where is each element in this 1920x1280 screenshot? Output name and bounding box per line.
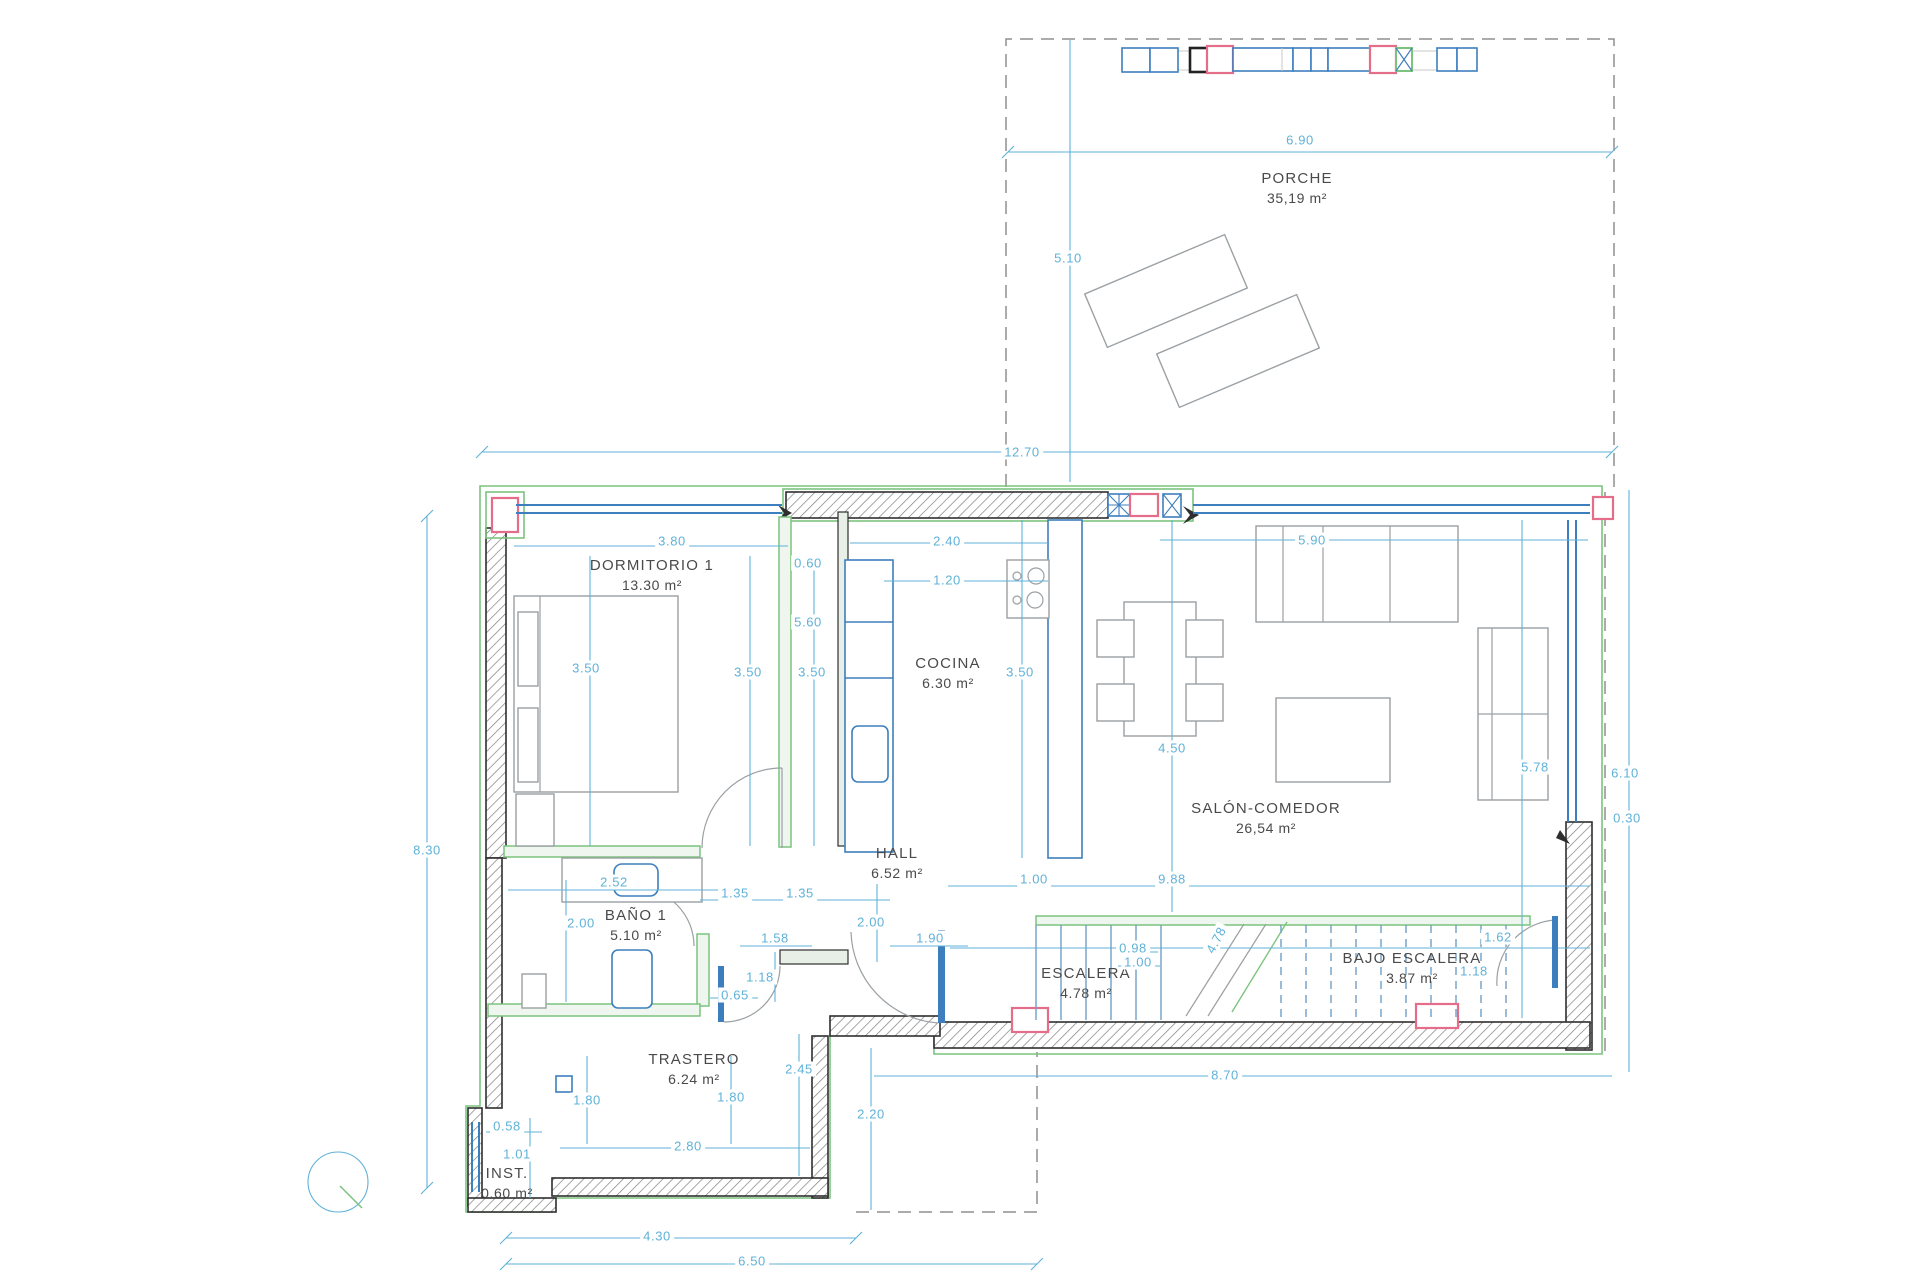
dimension-label: 12.70 <box>1001 445 1043 460</box>
room-name: SALÓN-COMEDOR <box>1191 799 1341 819</box>
room-area: 5.10 m² <box>605 926 667 944</box>
room-label-hall: HALL6.52 m² <box>871 844 923 882</box>
dimension-label: 2.80 <box>671 1139 705 1154</box>
room-label-cocina: COCINA6.30 m² <box>915 654 981 692</box>
dimension-label: 0.60 <box>791 556 825 571</box>
room-name: DORMITORIO 1 <box>590 556 714 576</box>
dimension-label: 5.60 <box>791 615 825 630</box>
dimension-label: 0.65 <box>718 988 752 1003</box>
dimension-label: 1.35 <box>718 886 752 901</box>
room-name: ESCALERA <box>1041 964 1131 984</box>
dimension-label: 1.00 <box>1121 955 1155 970</box>
dimension-label: 2.00 <box>854 915 888 930</box>
dimension-label: 8.30 <box>410 843 444 858</box>
dimension-label: 3.50 <box>731 665 765 680</box>
room-label-trastero: TRASTERO6.24 m² <box>648 1050 739 1088</box>
dimension-label: 3.80 <box>655 534 689 549</box>
room-label-escalera: ESCALERA4.78 m² <box>1041 964 1131 1002</box>
dimension-label: 5.90 <box>1295 533 1329 548</box>
room-area: 35,19 m² <box>1261 189 1332 207</box>
room-label-dormitorio-1: DORMITORIO 113.30 m² <box>590 556 714 594</box>
room-label-porche: PORCHE35,19 m² <box>1261 169 1332 207</box>
dimension-label: 1.90 <box>913 931 947 946</box>
room-label-inst: INST.0.60 m² <box>481 1164 533 1202</box>
dimension-label: 2.20 <box>854 1107 888 1122</box>
room-area: 0.60 m² <box>481 1184 533 1202</box>
dimension-label: 1.20 <box>930 573 964 588</box>
room-area: 6.52 m² <box>871 864 923 882</box>
room-name: INST. <box>481 1164 533 1184</box>
room-area: 4.78 m² <box>1041 984 1131 1002</box>
room-name: PORCHE <box>1261 169 1332 189</box>
dimension-label: 0.30 <box>1610 811 1644 826</box>
dimension-label: 4.78 <box>1201 922 1230 959</box>
dimension-label: 1.80 <box>714 1090 748 1105</box>
dimension-label: 0.98 <box>1116 941 1150 956</box>
dimension-label: 6.10 <box>1608 766 1642 781</box>
dimension-label: 1.80 <box>570 1093 604 1108</box>
room-name: TRASTERO <box>648 1050 739 1070</box>
dimension-label: 1.01 <box>500 1147 534 1162</box>
dimension-label: 8.70 <box>1208 1068 1242 1083</box>
room-area: 6.24 m² <box>648 1070 739 1088</box>
dimension-label: 2.40 <box>930 534 964 549</box>
dimension-label: 1.58 <box>758 931 792 946</box>
dimension-label: 6.90 <box>1283 133 1317 148</box>
dimension-label: 2.00 <box>564 916 598 931</box>
dimension-label: 3.50 <box>795 665 829 680</box>
dimension-label: 1.00 <box>1017 872 1051 887</box>
dimension-label: 2.45 <box>782 1062 816 1077</box>
dimension-label: 3.50 <box>1003 665 1037 680</box>
dimension-label: 3.50 <box>569 661 603 676</box>
dimension-label: 4.50 <box>1155 741 1189 756</box>
room-label-salon-comedor: SALÓN-COMEDOR26,54 m² <box>1191 799 1341 837</box>
dimension-label: 6.50 <box>735 1254 769 1269</box>
dimension-label: 0.58 <box>490 1119 524 1134</box>
dimension-label: 1.35 <box>783 886 817 901</box>
room-area: 13.30 m² <box>590 576 714 594</box>
dimension-label: 2.52 <box>597 875 631 890</box>
room-label-bano-1: BAÑO 15.10 m² <box>605 906 667 944</box>
room-name: HALL <box>871 844 923 864</box>
dimension-label: 1.18 <box>743 970 777 985</box>
dimension-label: 5.10 <box>1051 251 1085 266</box>
dimension-label: 1.18 <box>1457 964 1491 979</box>
dimension-label: 4.30 <box>640 1229 674 1244</box>
dimension-label: 1.62 <box>1481 930 1515 945</box>
label-layer: PORCHE35,19 m²DORMITORIO 113.30 m²COCINA… <box>0 0 1920 1280</box>
floor-plan-canvas: PORCHE35,19 m²DORMITORIO 113.30 m²COCINA… <box>0 0 1920 1280</box>
dimension-label: 9.88 <box>1155 872 1189 887</box>
dimension-label: 5.78 <box>1518 760 1552 775</box>
room-area: 26,54 m² <box>1191 819 1341 837</box>
room-area: 6.30 m² <box>915 674 981 692</box>
room-name: BAÑO 1 <box>605 906 667 926</box>
room-name: COCINA <box>915 654 981 674</box>
